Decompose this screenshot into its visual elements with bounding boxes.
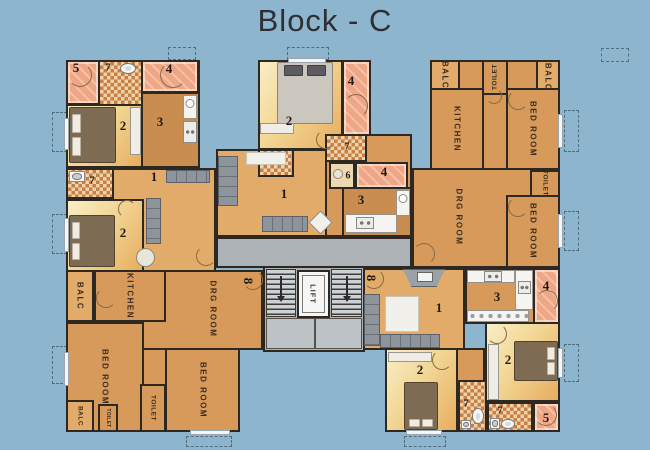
door-arc: [508, 90, 528, 110]
window: [558, 348, 563, 378]
wardrobe: [488, 344, 499, 400]
door-arc: [344, 94, 368, 118]
stove-icon: [518, 281, 531, 294]
window-projection: [168, 47, 196, 60]
wardrobe: [130, 107, 141, 155]
door-arc: [486, 88, 502, 104]
room-label: DRG ROOM: [209, 281, 218, 338]
room-label: BALC: [76, 282, 85, 310]
door-arc: [160, 62, 186, 88]
room-number: 8: [363, 275, 379, 282]
door-arc: [432, 350, 452, 370]
round-chair: [136, 248, 155, 267]
door-arc: [508, 197, 528, 217]
stove-icon: [183, 121, 197, 143]
door-arc: [487, 324, 507, 344]
down-arrow-icon: [280, 276, 282, 300]
door-arc: [96, 288, 116, 308]
washbasin-icon: [461, 420, 471, 429]
room-number: 3: [358, 192, 365, 208]
room-label: TOILET: [150, 395, 157, 421]
lift-label: LIFT: [309, 284, 318, 304]
room-number: 5: [73, 60, 80, 76]
room-number: 7: [498, 406, 503, 417]
stair-landing: [315, 318, 362, 349]
corridor: [216, 237, 412, 268]
bed: [69, 107, 116, 163]
window: [288, 58, 326, 63]
window: [406, 430, 442, 435]
room-number: 7: [90, 176, 95, 187]
window-projection: [564, 344, 579, 382]
room-number: 5: [543, 410, 550, 426]
sofa: [380, 334, 440, 348]
window: [64, 118, 69, 150]
room-number: 3: [157, 114, 164, 130]
door-arc: [316, 130, 335, 149]
room-number: 3: [494, 289, 501, 305]
washbasin-icon: [490, 418, 500, 429]
room-label: TOILET: [542, 170, 549, 196]
room-label: BED ROOM: [101, 349, 110, 405]
room-number: 4: [348, 73, 355, 89]
washbasin-icon: [333, 169, 343, 179]
room-label: KITCHEN: [126, 273, 135, 319]
page-title: Block - C: [0, 3, 650, 39]
room-number: 2: [120, 225, 127, 241]
window-projection: [601, 48, 629, 62]
window-projection: [564, 211, 579, 251]
room-number: 4: [381, 164, 388, 180]
room-label: BED ROOM: [199, 362, 208, 418]
room-number: 2: [120, 118, 127, 134]
room-label: TOILET: [105, 409, 111, 428]
washbasin-icon: [69, 171, 85, 182]
window-projection: [186, 436, 232, 447]
room-number: 7: [106, 63, 111, 74]
room-number: 2: [286, 113, 293, 129]
window: [64, 218, 69, 252]
down-arrow-icon: [346, 276, 348, 300]
room-label: BALC: [544, 63, 553, 91]
room-number: 8: [240, 278, 256, 285]
room-number: 1: [151, 169, 158, 185]
room-number: 1: [281, 186, 288, 202]
sofa: [166, 170, 210, 183]
room-label: DRG ROOM: [455, 189, 464, 246]
room-number: 7: [464, 399, 469, 410]
room-number: 2: [417, 362, 424, 378]
sink-counter-icon: [396, 190, 410, 216]
door-arc: [118, 200, 136, 218]
rug: [246, 152, 286, 165]
room-number: 2: [505, 352, 512, 368]
floor-plan-canvas: Block - C: [0, 0, 650, 450]
stove-icon: [356, 217, 374, 229]
room-label: TOILET: [492, 64, 499, 90]
door-arc: [413, 243, 435, 265]
room-number: 4: [166, 61, 173, 77]
rug: [385, 296, 419, 332]
room-number: 7: [345, 142, 350, 153]
room-label: BALC: [77, 406, 84, 426]
wc-icon: [472, 408, 484, 424]
sofa: [218, 156, 238, 206]
room-number: 6: [346, 171, 351, 182]
wardrobe: [388, 352, 432, 362]
room-number: 4: [543, 278, 550, 294]
window: [64, 352, 69, 386]
door-arc: [196, 246, 216, 266]
bed: [514, 341, 558, 381]
room-label: BALC: [441, 61, 450, 89]
bed: [69, 215, 115, 267]
room-label: BED ROOM: [529, 101, 538, 157]
sink-counter-icon: [183, 95, 197, 119]
window-projection: [564, 110, 579, 152]
room-label: BED ROOM: [529, 203, 538, 259]
window: [558, 114, 563, 148]
wc-icon: [501, 419, 515, 429]
sofa: [146, 198, 161, 244]
counter-dots: [467, 310, 529, 322]
room-number: 1: [436, 300, 443, 316]
sofa: [364, 294, 380, 346]
stove-icon: [484, 271, 502, 282]
room-label: KITCHEN: [453, 106, 462, 152]
window: [558, 214, 563, 248]
bed: [404, 382, 438, 430]
door-arc: [68, 63, 92, 87]
wc-icon: [120, 63, 136, 74]
sofa: [262, 216, 308, 232]
window: [190, 430, 230, 435]
stair-landing: [266, 318, 315, 349]
window-projection: [404, 436, 446, 447]
